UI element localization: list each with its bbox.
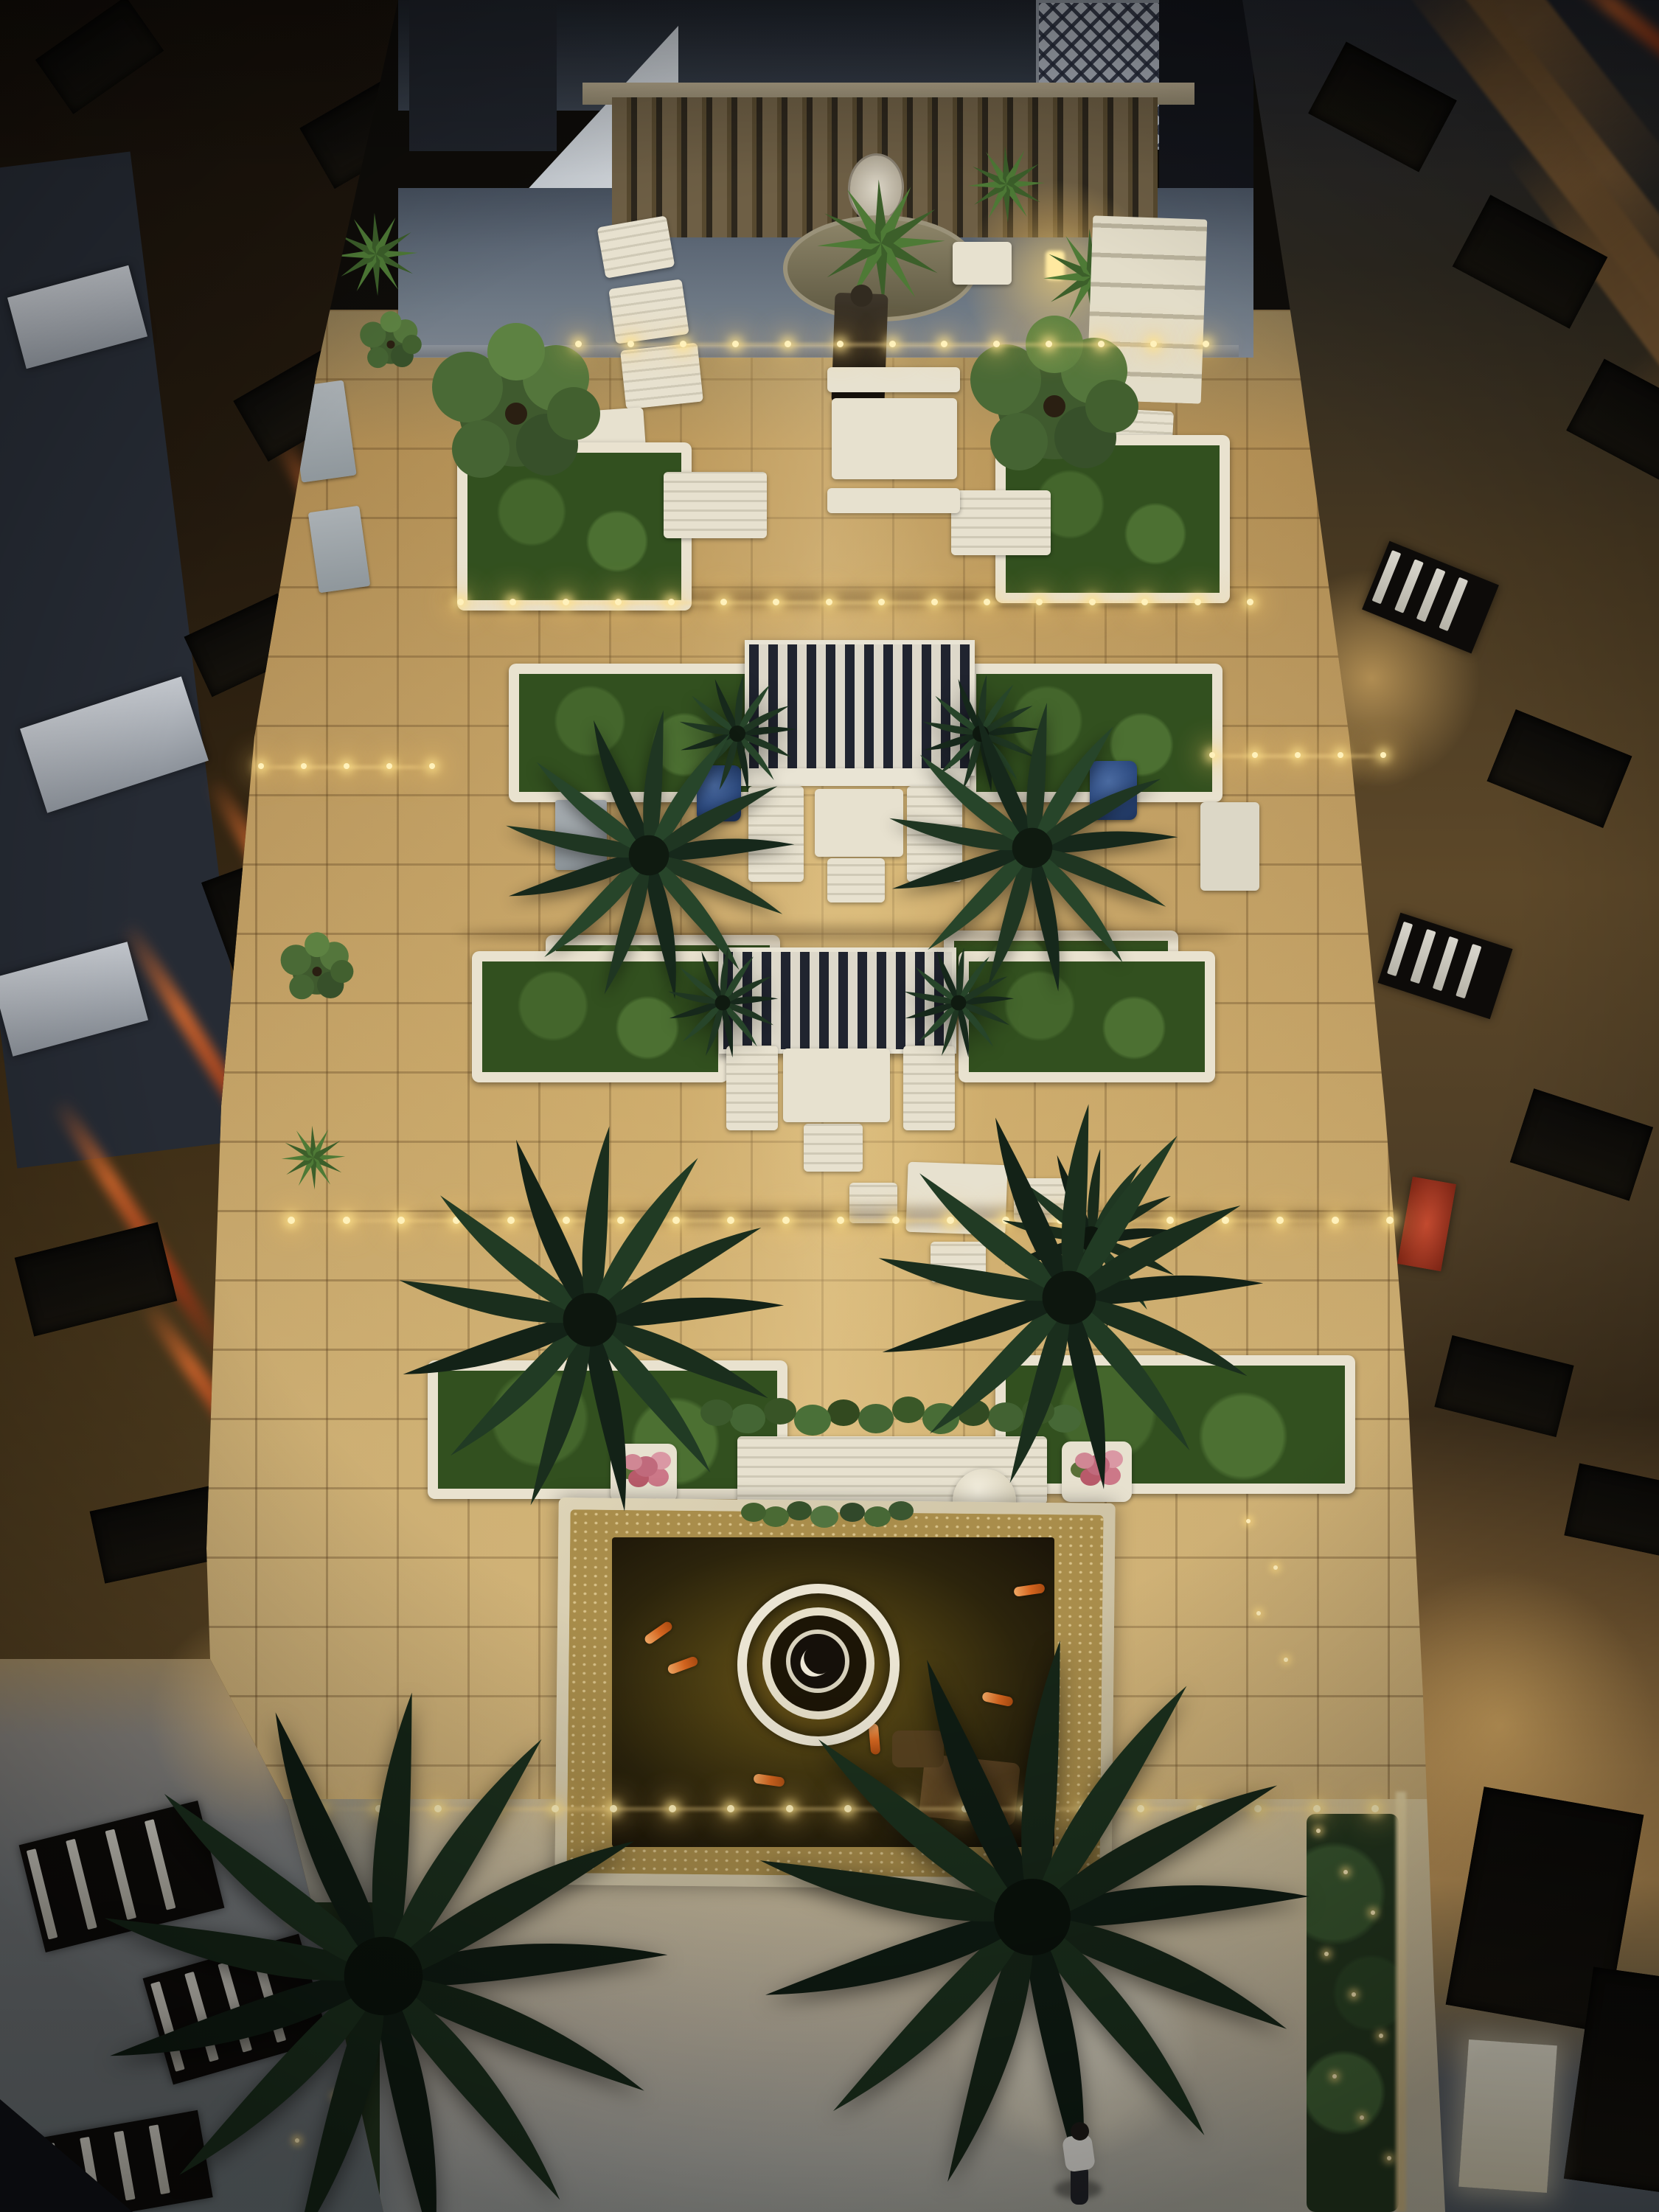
apartment-courtyard-photo (0, 0, 1659, 2212)
sparkle-light (1371, 1910, 1375, 1915)
sparkle-light (1352, 1992, 1356, 1997)
palm-tree-large (81, 1674, 686, 2212)
palm-sprig (900, 944, 1018, 1062)
sparkle-light (1360, 2115, 1364, 2120)
palm-tree-lower-left (383, 1113, 796, 1526)
palm-sprig (664, 944, 782, 1062)
sparkle-light (1332, 2074, 1337, 2079)
pedestrian-head (1071, 2122, 1089, 2140)
sparkle-light (1246, 1519, 1251, 1523)
sparkle-light (1379, 2034, 1383, 2038)
sparkle-light (1256, 1611, 1261, 1615)
sparkle-light (1343, 1870, 1348, 1874)
pedestrian (1056, 2122, 1103, 2212)
palm-tree-large (737, 1622, 1327, 2212)
sparkle-light (1387, 2156, 1391, 2160)
palm-tree-lower-right (863, 1091, 1276, 1504)
sparkle-light (1273, 1565, 1278, 1570)
